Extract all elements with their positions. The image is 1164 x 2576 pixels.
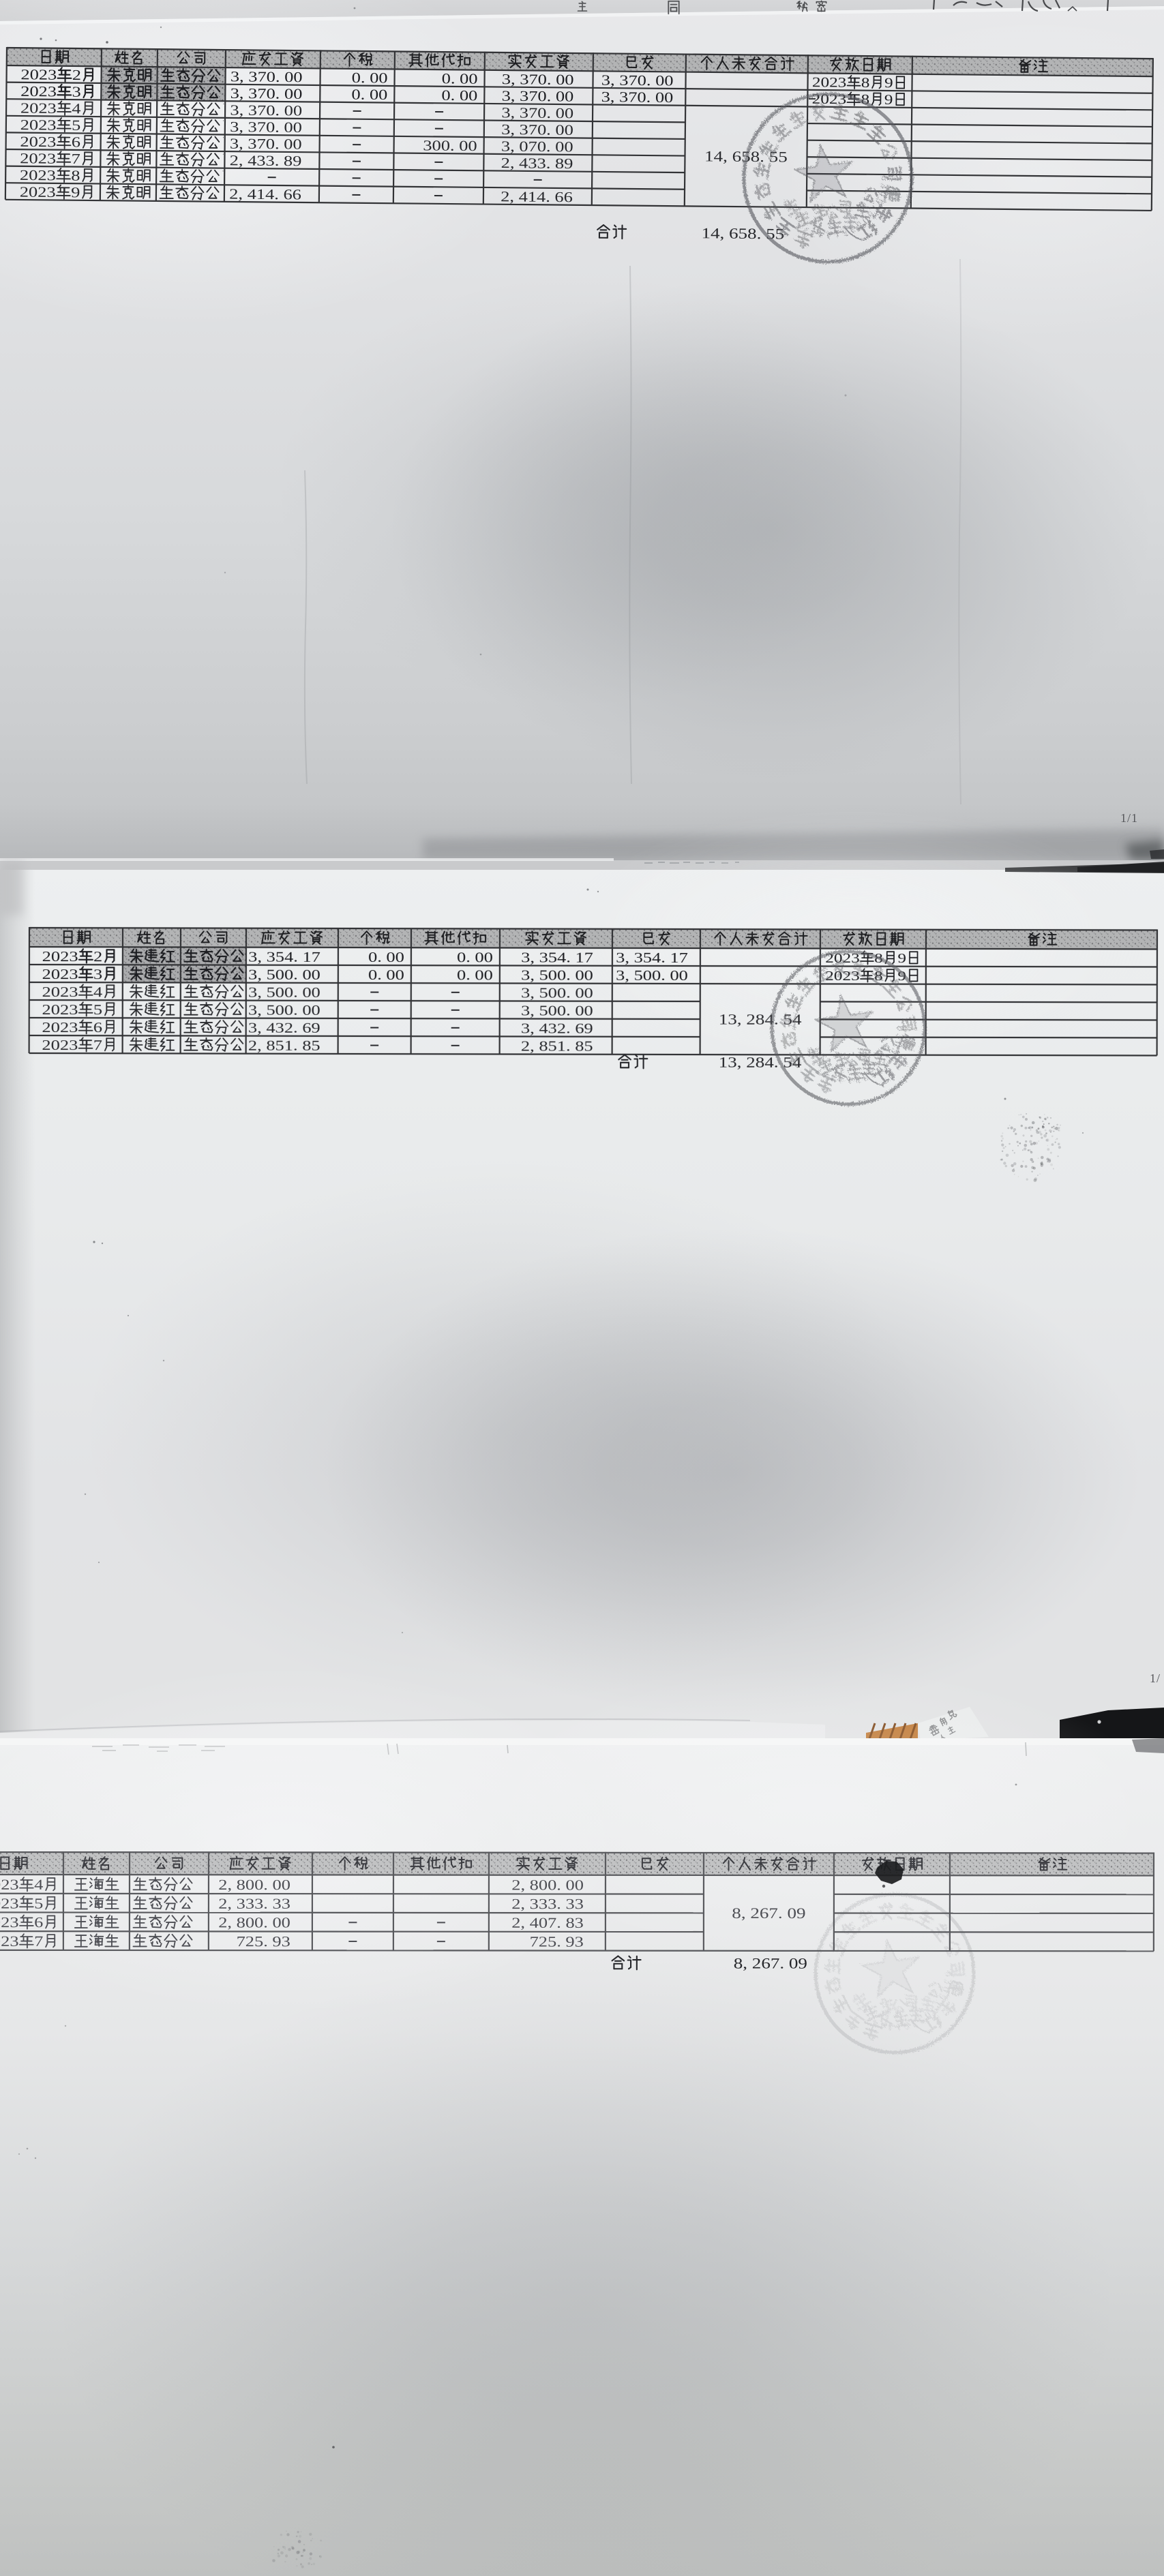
svg-text:4: 4 (93, 984, 103, 1000)
svg-text:8, 267. 09: 8, 267. 09 (734, 1954, 807, 1971)
svg-text:3, 070. 00: 3, 070. 00 (501, 138, 573, 155)
svg-text:3, 370. 00: 3, 370. 00 (230, 85, 303, 102)
svg-text:0. 00: 0. 00 (457, 967, 493, 983)
svg-text:2: 2 (72, 67, 81, 83)
svg-text:3, 370. 00: 3, 370. 00 (601, 72, 674, 89)
svg-text:9: 9 (884, 93, 893, 108)
svg-text:3, 500. 00: 3, 500. 00 (248, 1001, 320, 1018)
svg-text:3, 370. 00: 3, 370. 00 (230, 68, 303, 85)
svg-text:13, 284. 54: 13, 284. 54 (719, 1054, 802, 1071)
svg-text:8: 8 (861, 76, 870, 91)
svg-text:1/1: 1/1 (1120, 811, 1138, 825)
svg-text:2, 333. 33: 2, 333. 33 (218, 1896, 290, 1912)
svg-text:3, 354. 17: 3, 354. 17 (248, 948, 320, 965)
svg-text:2023: 2023 (0, 1914, 19, 1930)
svg-text:3, 370. 00: 3, 370. 00 (502, 88, 574, 105)
svg-text:2023: 2023 (42, 984, 78, 1000)
svg-text:3, 354. 17: 3, 354. 17 (616, 950, 688, 966)
svg-text:2023: 2023 (42, 1019, 78, 1035)
svg-text:0. 00: 0. 00 (457, 949, 493, 965)
svg-text:0. 00: 0. 00 (442, 70, 478, 87)
svg-text:2, 433. 89: 2, 433. 89 (501, 155, 573, 172)
svg-text:9: 9 (71, 184, 80, 200)
svg-text:2023: 2023 (20, 117, 57, 134)
svg-text:0. 00: 0. 00 (368, 949, 404, 965)
svg-text:2, 433. 89: 2, 433. 89 (230, 152, 302, 169)
svg-text:3, 354. 17: 3, 354. 17 (521, 949, 593, 965)
svg-text:2023: 2023 (42, 1037, 78, 1053)
svg-text:4: 4 (34, 1877, 44, 1893)
svg-text:2, 851. 85: 2, 851. 85 (248, 1037, 320, 1053)
svg-text:2, 800. 00: 2, 800. 00 (511, 1877, 584, 1893)
svg-text:725. 93: 725. 93 (237, 1933, 290, 1950)
svg-text:9: 9 (884, 76, 893, 91)
svg-text:3, 370. 00: 3, 370. 00 (230, 136, 302, 153)
svg-text:2023: 2023 (0, 1895, 19, 1911)
svg-text:2023: 2023 (20, 134, 56, 151)
svg-text:3: 3 (72, 84, 80, 100)
svg-text:2023: 2023 (42, 948, 78, 965)
svg-text:2023: 2023 (20, 66, 57, 83)
svg-text:3, 370. 00: 3, 370. 00 (501, 104, 573, 121)
svg-text:2023: 2023 (20, 100, 57, 117)
svg-text:3, 370. 00: 3, 370. 00 (502, 71, 574, 88)
svg-text:6: 6 (34, 1914, 44, 1930)
svg-text:2023: 2023 (812, 75, 847, 90)
svg-text:6: 6 (93, 1019, 103, 1035)
svg-text:7: 7 (34, 1933, 44, 1950)
svg-text:2023: 2023 (42, 966, 78, 982)
svg-text:5: 5 (34, 1895, 43, 1911)
svg-text:2, 333. 33: 2, 333. 33 (511, 1896, 584, 1912)
svg-text:0. 00: 0. 00 (352, 70, 388, 87)
svg-text:3, 500. 00: 3, 500. 00 (521, 1002, 593, 1018)
svg-text:3, 500. 00: 3, 500. 00 (248, 966, 320, 982)
svg-text:2023: 2023 (0, 1933, 19, 1950)
svg-text:2: 2 (93, 948, 102, 965)
svg-text:8, 267. 09: 8, 267. 09 (732, 1905, 805, 1922)
svg-text:2, 800. 00: 2, 800. 00 (218, 1914, 290, 1930)
svg-text:5: 5 (72, 117, 80, 134)
svg-text:300. 00: 300. 00 (423, 137, 477, 154)
svg-text:3, 500. 00: 3, 500. 00 (248, 984, 320, 1000)
svg-text:4: 4 (72, 100, 81, 117)
svg-text:0. 00: 0. 00 (351, 87, 387, 104)
svg-text:3, 432. 69: 3, 432. 69 (521, 1020, 593, 1036)
svg-text:2023: 2023 (20, 83, 57, 100)
svg-text:7: 7 (72, 151, 81, 167)
svg-text:7: 7 (93, 1037, 103, 1053)
svg-text:8: 8 (71, 168, 80, 184)
svg-text:3, 370. 00: 3, 370. 00 (601, 89, 674, 106)
svg-text:3, 370. 00: 3, 370. 00 (230, 102, 302, 119)
svg-text:2023: 2023 (42, 1001, 78, 1018)
svg-text:2023: 2023 (20, 150, 56, 167)
svg-text:3, 432. 69: 3, 432. 69 (248, 1019, 320, 1035)
svg-text:2, 414. 66: 2, 414. 66 (229, 185, 301, 202)
svg-text:2023: 2023 (20, 167, 56, 184)
svg-text:3, 370. 00: 3, 370. 00 (501, 121, 573, 138)
svg-text:725. 93: 725. 93 (530, 1934, 584, 1950)
svg-text:3, 500. 00: 3, 500. 00 (521, 967, 593, 983)
svg-text:2, 414. 66: 2, 414. 66 (501, 188, 573, 205)
svg-text:9: 9 (897, 951, 906, 966)
svg-text:6: 6 (72, 134, 81, 150)
svg-text:1/: 1/ (1150, 1671, 1161, 1685)
svg-text:0. 00: 0. 00 (368, 967, 404, 983)
svg-text:2, 407. 83: 2, 407. 83 (511, 1915, 584, 1931)
svg-text:2023: 2023 (0, 1877, 19, 1893)
svg-text:3, 500. 00: 3, 500. 00 (616, 967, 688, 984)
svg-text:2, 851. 85: 2, 851. 85 (521, 1037, 593, 1054)
svg-text:3, 370. 00: 3, 370. 00 (230, 119, 302, 136)
svg-text:2, 800. 00: 2, 800. 00 (218, 1877, 290, 1893)
svg-text:0. 00: 0. 00 (441, 87, 477, 104)
svg-text:3, 500. 00: 3, 500. 00 (521, 984, 593, 1001)
svg-text:2023: 2023 (20, 183, 56, 200)
svg-text:5: 5 (93, 1001, 102, 1018)
svg-text:3: 3 (93, 966, 102, 982)
